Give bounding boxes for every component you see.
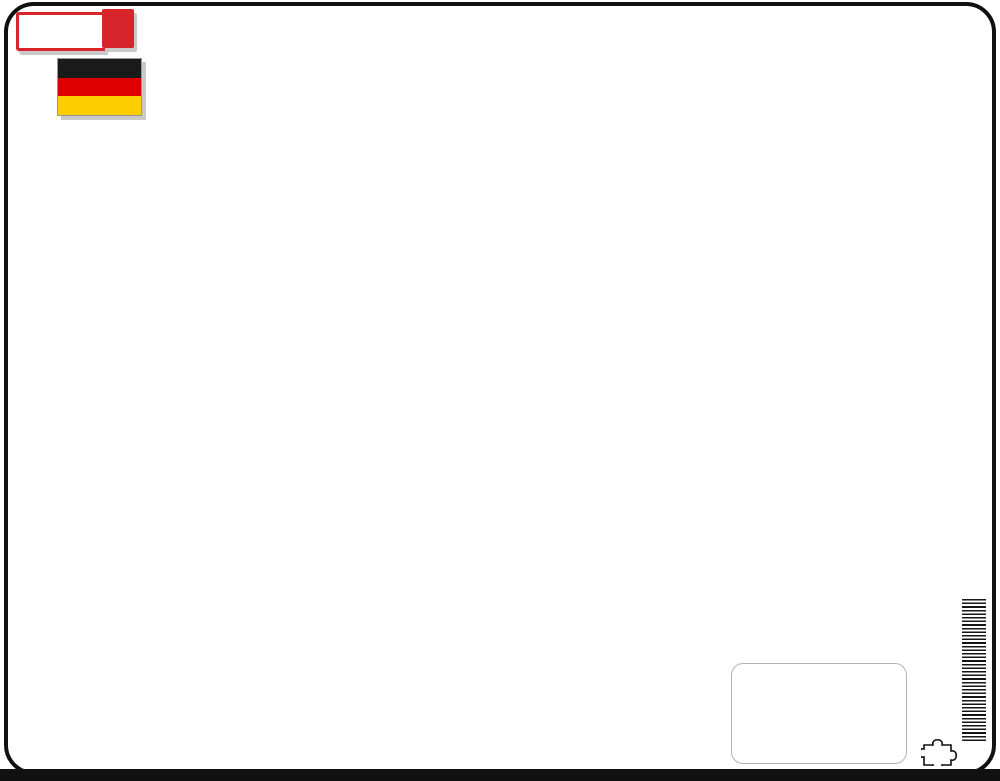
larsen-logo-box — [16, 12, 105, 51]
map-key — [731, 663, 907, 764]
flag-black-band — [58, 59, 141, 78]
puzzle-board — [0, 0, 1000, 781]
larsen-star-icon — [102, 9, 134, 48]
larsen-logo — [16, 9, 138, 49]
flag-gold-band — [58, 96, 141, 115]
tray-bottom-bar — [0, 769, 1000, 781]
tray-border — [4, 2, 996, 775]
piece-count-icon — [921, 736, 963, 771]
flag-red-band — [58, 78, 141, 97]
germany-flag — [57, 58, 142, 116]
barcode — [962, 599, 986, 742]
